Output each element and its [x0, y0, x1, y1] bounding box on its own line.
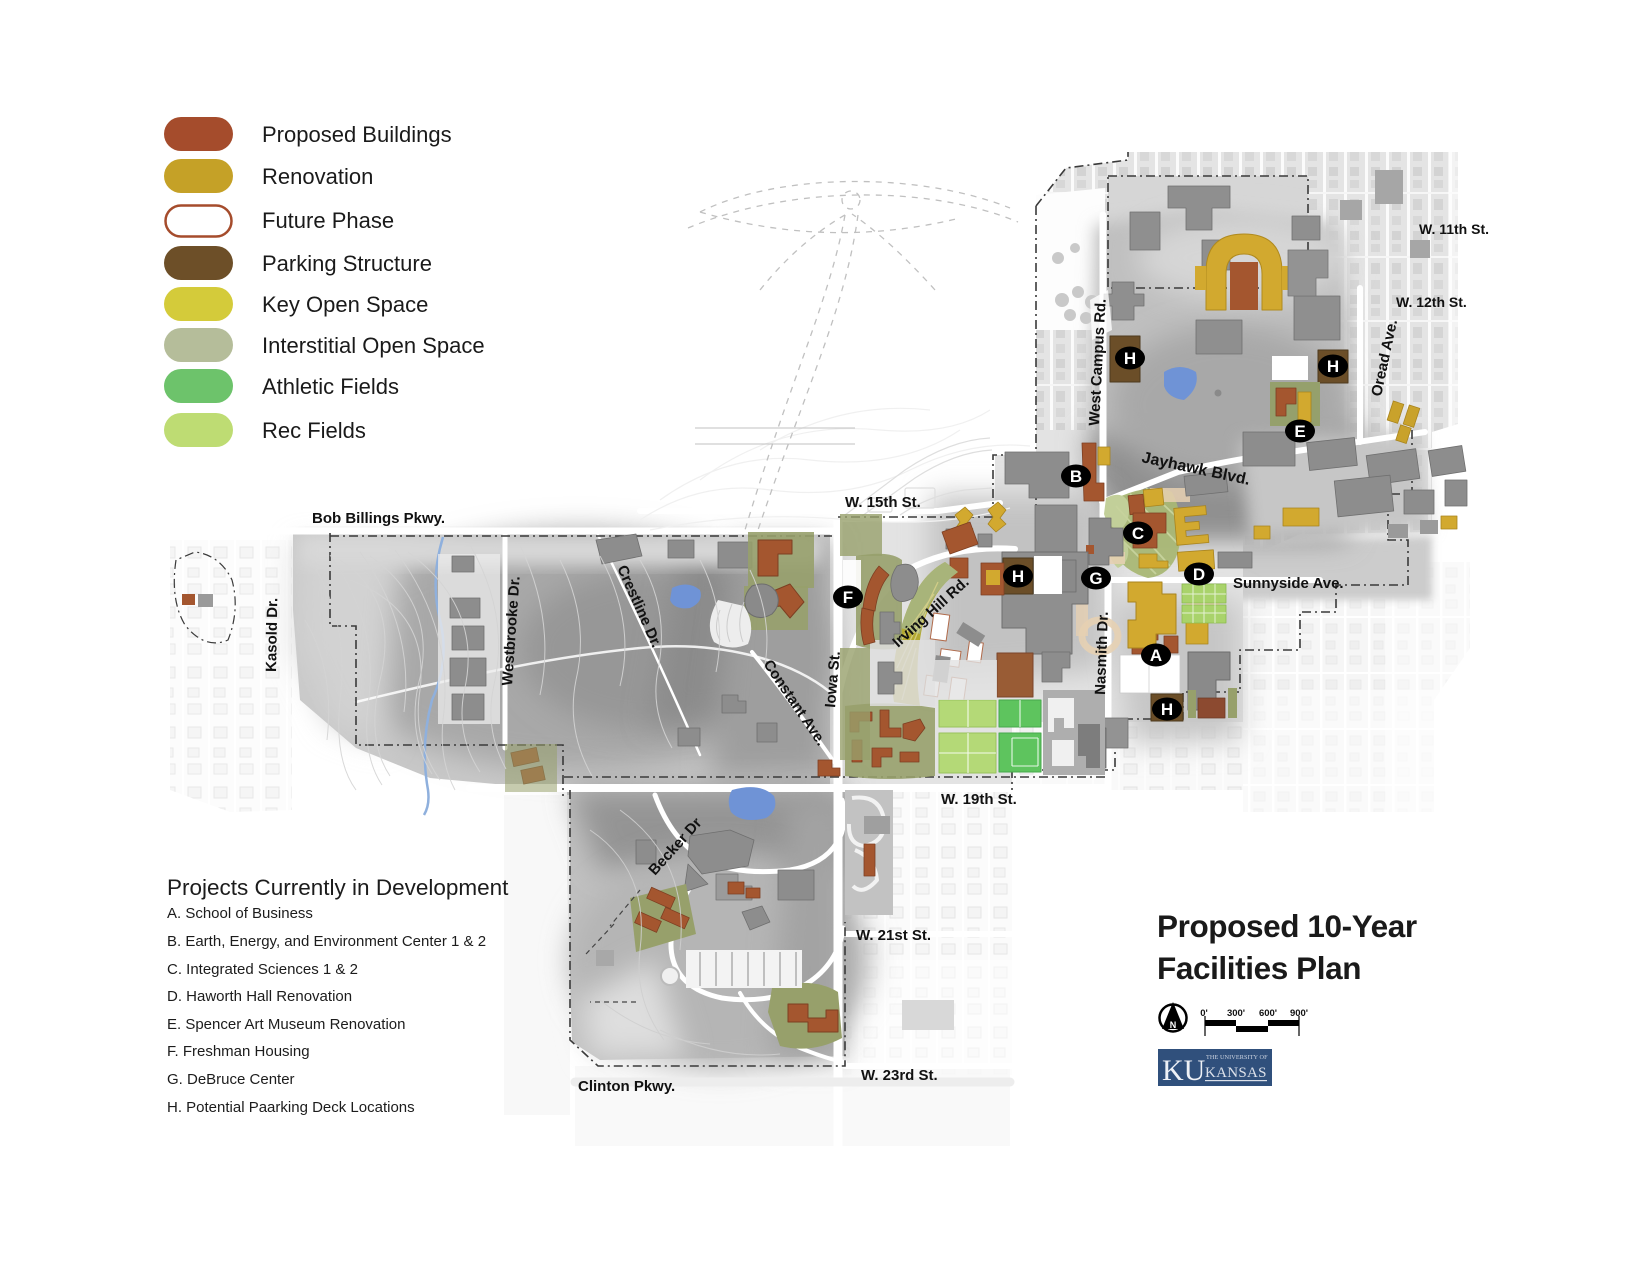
svg-text:H. Potential Paarking Deck Loc: H. Potential Paarking Deck Locations [167, 1099, 415, 1116]
svg-text:A. School of Business: A. School of Business [167, 905, 313, 922]
svg-text:C. Integrated Sciences 1 & 2: C. Integrated Sciences 1 & 2 [167, 961, 358, 978]
svg-text:KANSAS: KANSAS [1205, 1065, 1267, 1081]
svg-text:H: H [1124, 349, 1136, 368]
svg-text:Athletic Fields: Athletic Fields [262, 374, 399, 399]
svg-text:Sunnyside Ave.: Sunnyside Ave. [1233, 575, 1344, 592]
svg-text:Renovation: Renovation [262, 164, 373, 189]
svg-text:Interstitial Open Space: Interstitial Open Space [262, 333, 485, 358]
svg-text:W. 19th St.: W. 19th St. [941, 791, 1017, 808]
svg-text:Future Phase: Future Phase [262, 208, 394, 233]
svg-text:E. Spencer Art Museum Renovat: E. Spencer Art Museum Renovation [167, 1016, 405, 1033]
svg-text:W. 23rd St.: W. 23rd St. [861, 1067, 938, 1084]
svg-text:W. 15th St.: W. 15th St. [845, 494, 921, 511]
svg-text:B: B [1070, 467, 1082, 486]
svg-text:A: A [1150, 646, 1162, 665]
svg-text:Facilities Plan: Facilities Plan [1157, 950, 1361, 986]
svg-text:H: H [1327, 357, 1339, 376]
svg-text:W. 12th St.: W. 12th St. [1396, 294, 1467, 310]
svg-text:600': 600' [1259, 1008, 1277, 1019]
svg-text:300': 300' [1227, 1008, 1245, 1019]
svg-text:D: D [1193, 565, 1205, 584]
svg-text:H: H [1161, 700, 1173, 719]
svg-text:D. Haworth Hall Renovation: D. Haworth Hall Renovation [167, 988, 352, 1005]
svg-text:Kasold Dr.: Kasold Dr. [263, 598, 281, 672]
svg-text:F: F [843, 588, 853, 607]
svg-text:E: E [1294, 422, 1305, 441]
svg-text:Proposed 10-Year: Proposed 10-Year [1157, 908, 1417, 944]
svg-text:F. Freshman Housing: F. Freshman Housing [167, 1043, 310, 1060]
svg-text:Nasmith Dr.: Nasmith Dr. [1092, 611, 1112, 695]
svg-text:B. Earth, Energy, and Environ: B. Earth, Energy, and Environment Center… [167, 933, 486, 950]
svg-text:0': 0' [1200, 1008, 1208, 1019]
svg-text:Key Open Space: Key Open Space [262, 292, 428, 317]
svg-text:G. DeBruce Center: G. DeBruce Center [167, 1071, 295, 1088]
svg-text:N: N [1170, 1020, 1177, 1030]
svg-text:W. 11th St.: W. 11th St. [1419, 221, 1489, 237]
svg-text:Rec Fields: Rec Fields [262, 418, 366, 443]
svg-text:KU: KU [1162, 1054, 1206, 1087]
svg-text:G: G [1089, 569, 1102, 588]
svg-text:THE UNIVERSITY OF: THE UNIVERSITY OF [1206, 1054, 1268, 1061]
svg-text:Projects Currently in Developm: Projects Currently in Development [167, 875, 509, 900]
svg-text:H: H [1012, 567, 1024, 586]
svg-text:Clinton Pkwy.: Clinton Pkwy. [578, 1078, 675, 1095]
svg-text:Proposed Buildings: Proposed Buildings [262, 122, 452, 147]
svg-text:Bob Billings Pkwy.: Bob Billings Pkwy. [312, 510, 445, 527]
svg-text:W. 21st St.: W. 21st St. [856, 927, 931, 944]
svg-text:Parking Structure: Parking Structure [262, 251, 432, 276]
svg-text:C: C [1132, 524, 1144, 543]
